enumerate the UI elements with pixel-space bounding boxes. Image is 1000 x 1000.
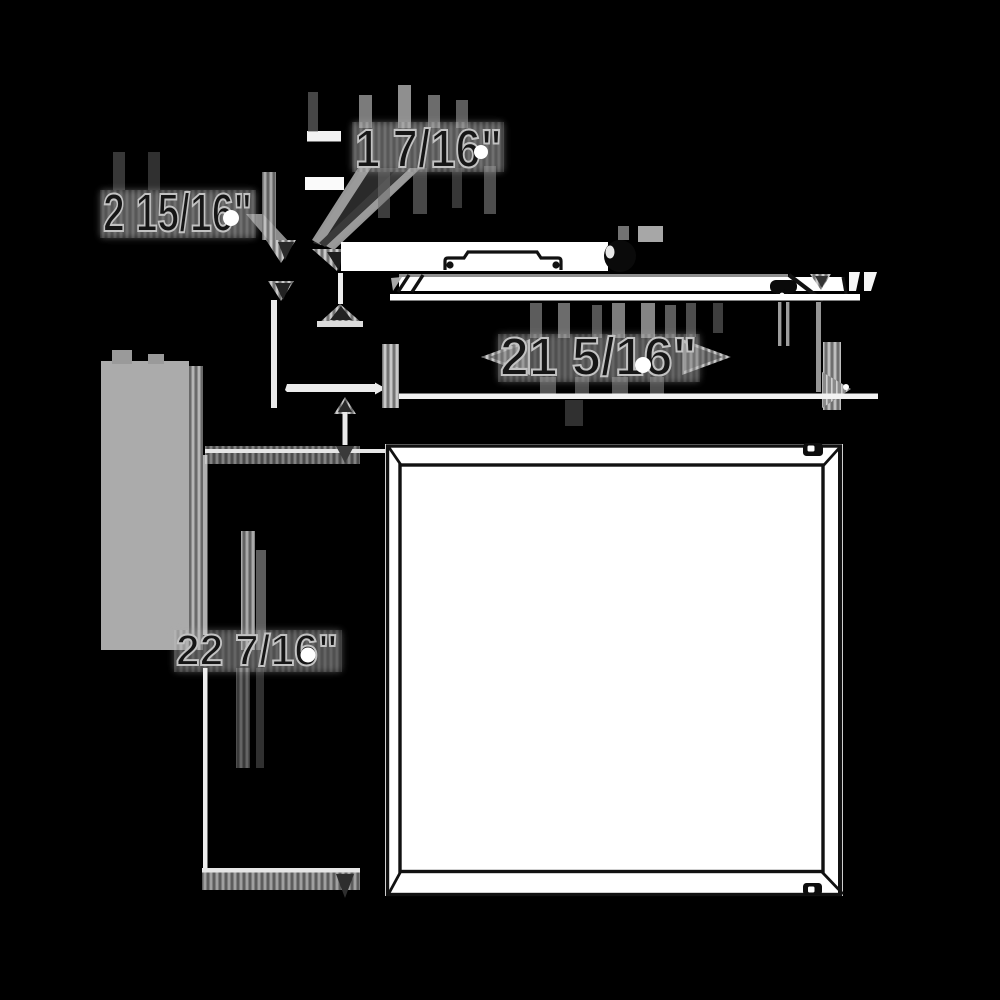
svg-text:21 5/16": 21 5/16" — [500, 327, 697, 387]
